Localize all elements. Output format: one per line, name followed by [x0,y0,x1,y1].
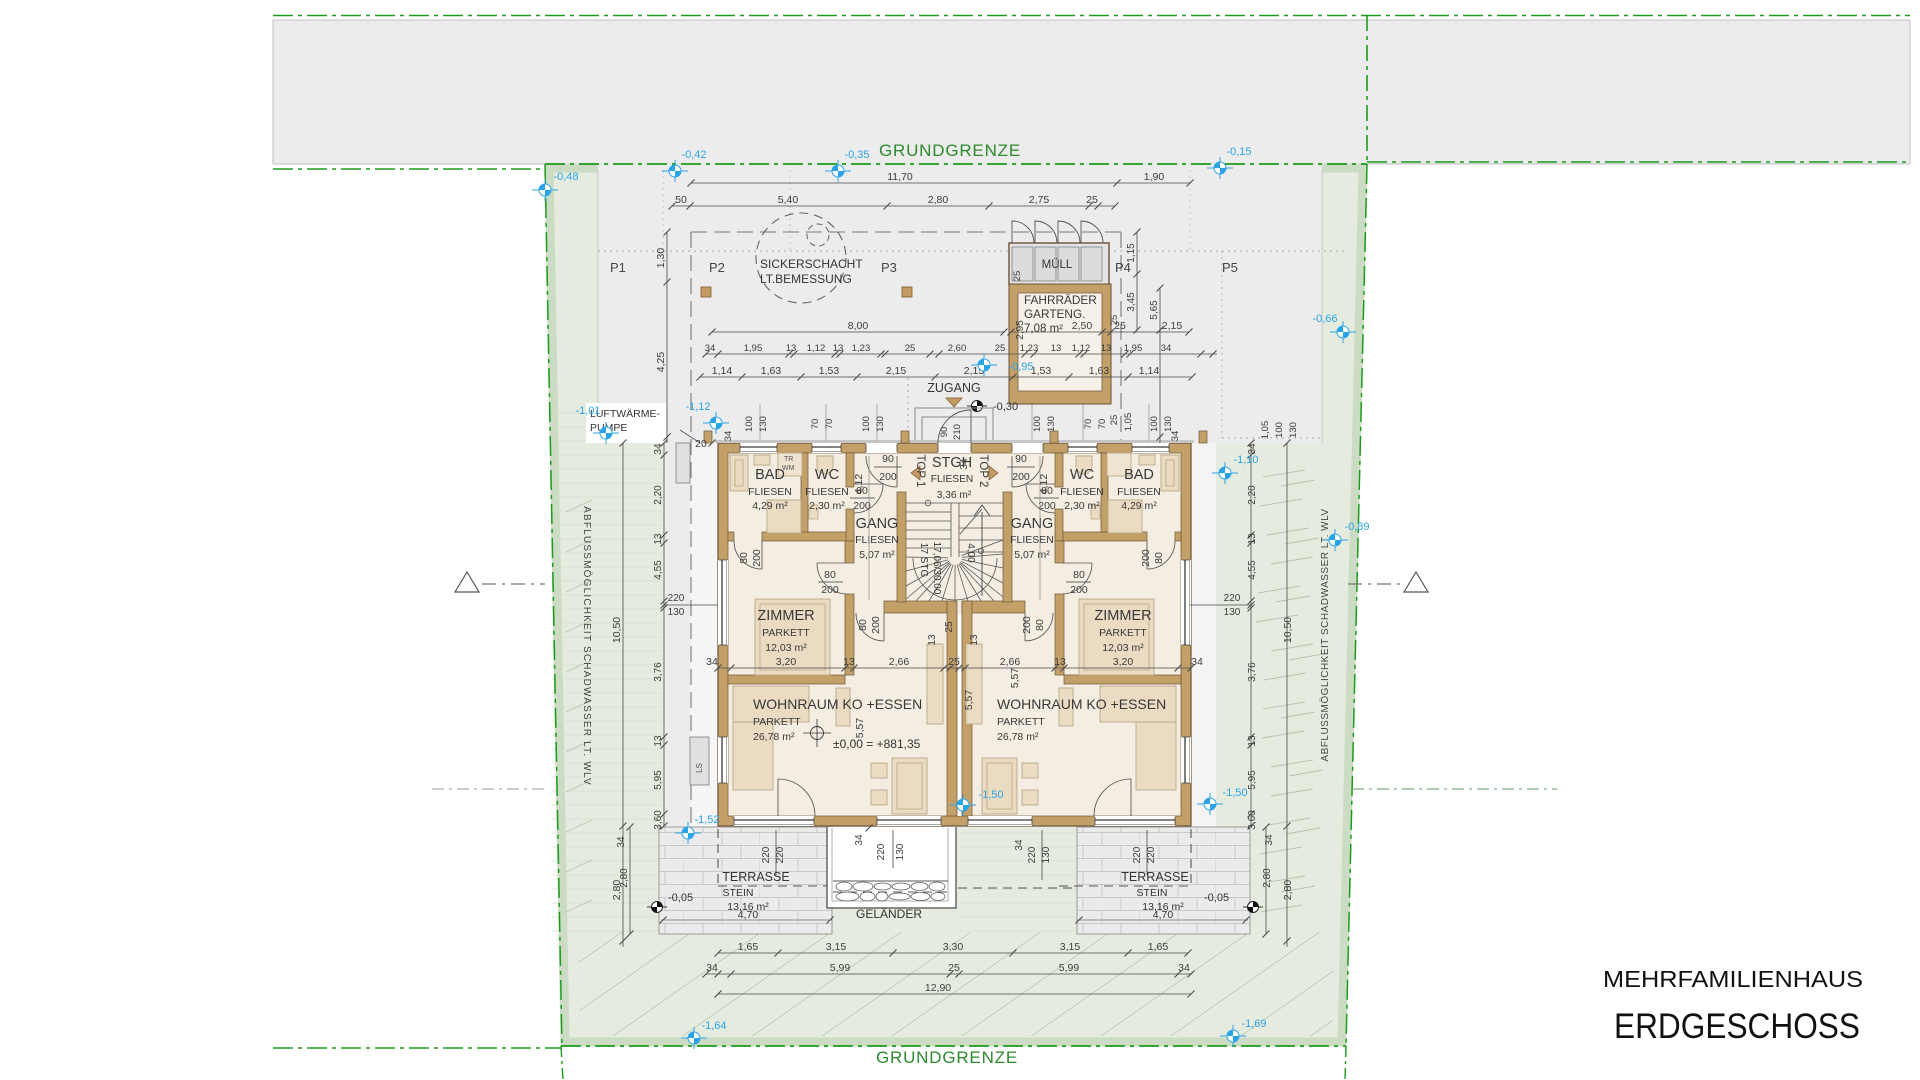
svg-text:130: 130 [1224,607,1241,618]
svg-text:200: 200 [751,549,763,567]
svg-text:100: 100 [1149,416,1160,432]
svg-text:80: 80 [824,569,836,581]
svg-text:1,65: 1,65 [1148,941,1169,953]
svg-text:80: 80 [1073,569,1085,581]
svg-text:130: 130 [895,843,906,860]
svg-text:2,66: 2,66 [889,656,910,668]
svg-text:2,80: 2,80 [619,868,630,888]
svg-text:13: 13 [1051,343,1062,354]
svg-text:25: 25 [995,343,1006,354]
svg-text:1,95: 1,95 [744,343,763,354]
svg-text:70: 70 [1097,419,1108,430]
svg-text:34: 34 [1014,839,1025,851]
svg-text:WOHNRAUM KO +ESSEN: WOHNRAUM KO +ESSEN [997,696,1166,712]
svg-text:100: 100 [744,416,755,432]
svg-text:13: 13 [1101,343,1112,354]
svg-text:3,60: 3,60 [653,810,664,830]
svg-text:8,00: 8,00 [848,320,869,332]
svg-text:2,75: 2,75 [1029,194,1050,206]
svg-text:80: 80 [1153,552,1165,564]
svg-text:4,70: 4,70 [738,909,759,921]
svg-text:2,30 m²: 2,30 m² [1064,500,1100,512]
svg-text:2,15: 2,15 [886,365,907,377]
svg-text:-0,05: -0,05 [668,892,693,904]
svg-text:-1,12: -1,12 [685,401,710,413]
svg-text:26,78 m²: 26,78 m² [997,731,1039,743]
svg-text:90: 90 [882,453,894,465]
svg-text:80: 80 [1034,619,1046,631]
svg-text:200: 200 [853,500,871,512]
svg-text:34: 34 [705,343,716,354]
svg-text:1,63: 1,63 [1089,365,1110,377]
svg-text:25: 25 [1109,415,1120,426]
svg-text:34: 34 [616,836,627,848]
svg-text:130: 130 [875,416,886,432]
svg-text:2,50: 2,50 [1072,320,1093,332]
svg-text:3,30: 3,30 [943,941,964,953]
svg-text:1,95: 1,95 [1124,343,1143,354]
svg-text:5,40: 5,40 [778,194,799,206]
svg-text:5,57: 5,57 [854,718,866,739]
svg-text:2,60: 2,60 [948,343,967,354]
svg-text:70: 70 [810,419,821,430]
svg-text:1,12: 1,12 [1072,343,1091,354]
svg-text:210: 210 [952,424,963,440]
svg-text:P5: P5 [1222,260,1238,275]
svg-text:-0,89: -0,89 [1344,521,1369,533]
svg-text:ABFLUSSMÖGLICHKEIT SCHADWASSER: ABFLUSSMÖGLICHKEIT SCHADWASSER LT. WLV [581,506,593,786]
svg-text:-0,48: -0,48 [553,171,578,183]
svg-text:-1,52: -1,52 [694,814,719,826]
svg-text:200: 200 [870,616,882,634]
svg-text:13: 13 [927,634,938,646]
svg-text:2,80: 2,80 [928,194,949,206]
svg-text:4,12: 4,12 [853,474,865,495]
svg-text:80: 80 [738,552,750,564]
svg-text:25: 25 [948,962,960,974]
svg-text:12,03 m²: 12,03 m² [1102,642,1144,654]
svg-text:1,14: 1,14 [712,365,733,377]
svg-text:34: 34 [1161,343,1172,354]
svg-text:1,53: 1,53 [819,365,840,377]
svg-text:25: 25 [948,656,960,668]
svg-text:25: 25 [1012,271,1023,282]
svg-text:90: 90 [939,427,950,438]
svg-text:70: 70 [1083,419,1094,430]
svg-text:WC: WC [1070,467,1094,483]
svg-text:220: 220 [1146,846,1157,863]
svg-text:12,03 m²: 12,03 m² [765,642,807,654]
svg-text:WOHNRAUM KO +ESSEN: WOHNRAUM KO +ESSEN [753,696,922,712]
svg-text:5,95: 5,95 [653,770,664,790]
svg-text:200: 200 [1021,616,1033,634]
svg-text:2,15: 2,15 [1162,320,1183,332]
svg-text:WC: WC [815,467,839,483]
svg-text:200: 200 [821,584,839,596]
svg-text:-0,42: -0,42 [681,149,706,161]
svg-text:MEHRFAMILIENHAUS: MEHRFAMILIENHAUS [1603,966,1863,992]
svg-text:4,70: 4,70 [1153,909,1174,921]
svg-text:-1,50: -1,50 [1222,787,1247,799]
svg-text:2,80: 2,80 [1262,868,1273,888]
svg-text:3,45: 3,45 [1126,292,1137,312]
svg-text:90: 90 [1015,453,1027,465]
svg-text:34: 34 [854,834,865,846]
svg-text:LUFTWÄRME-: LUFTWÄRME- [590,408,660,420]
svg-text:BAD: BAD [1124,467,1154,483]
svg-text:34: 34 [706,962,718,974]
svg-text:100: 100 [1032,416,1043,432]
svg-text:10,50: 10,50 [611,617,623,643]
svg-text:100: 100 [861,416,872,432]
svg-text:2,30 m²: 2,30 m² [809,500,845,512]
svg-text:SICKERSCHACHT: SICKERSCHACHT [760,257,863,271]
svg-text:-0,15: -0,15 [1226,146,1251,158]
svg-text:GANG: GANG [1011,516,1054,532]
svg-text:3,15: 3,15 [826,941,847,953]
svg-text:LT.BEMESSUNG: LT.BEMESSUNG [760,272,852,286]
svg-text:34: 34 [959,458,970,470]
svg-text:ZIMMER: ZIMMER [757,608,814,624]
svg-text:220: 220 [775,846,786,863]
svg-text:P2: P2 [709,260,725,275]
svg-text:34: 34 [1178,962,1190,974]
svg-text:4,29 m²: 4,29 m² [752,500,788,512]
svg-text:1,05: 1,05 [1123,413,1134,432]
svg-text:1,63: 1,63 [761,365,782,377]
svg-text:1,23: 1,23 [1020,343,1039,354]
svg-text:2,20: 2,20 [1247,485,1258,505]
svg-text:1,65: 1,65 [738,941,759,953]
svg-text:5,99: 5,99 [1059,962,1080,974]
svg-text:-1,10: -1,10 [1233,454,1258,466]
svg-text:1,23: 1,23 [852,343,871,354]
svg-text:34: 34 [723,431,734,442]
svg-text:P1: P1 [610,260,626,275]
svg-text:3,76: 3,76 [653,662,664,682]
svg-text:TOP 1: TOP 1 [914,455,926,488]
svg-text:13: 13 [1247,533,1258,545]
svg-text:130: 130 [1163,416,1174,432]
svg-text:5,65: 5,65 [1149,300,1160,320]
svg-text:220: 220 [876,843,887,860]
svg-text:FAHRRÄDER: FAHRRÄDER [1024,293,1097,307]
svg-text:-0,95: -0,95 [1008,361,1033,373]
svg-text:50: 50 [675,194,687,206]
svg-text:13: 13 [786,343,797,354]
svg-text:3,76: 3,76 [1247,662,1258,682]
svg-text:11,70: 11,70 [887,171,913,183]
svg-text:ERDGESCHOSS: ERDGESCHOSS [1614,1007,1860,1046]
svg-text:BAD: BAD [755,467,785,483]
svg-text:4,25: 4,25 [655,352,667,373]
svg-text:13: 13 [653,735,664,747]
svg-text:17 STG: 17 STG [918,543,929,578]
svg-text:34: 34 [653,443,664,455]
svg-text:200: 200 [1038,500,1056,512]
svg-text:-0,30: -0,30 [993,401,1018,413]
svg-text:5,07 m²: 5,07 m² [1014,549,1050,561]
svg-text:5,57: 5,57 [1009,668,1021,689]
svg-text:3,20: 3,20 [776,656,797,668]
svg-text:13: 13 [1247,735,1258,747]
svg-text:34: 34 [1264,834,1275,846]
svg-text:70: 70 [824,419,835,430]
svg-text:ZIMMER: ZIMMER [1094,608,1151,624]
svg-text:5,99: 5,99 [830,962,851,974]
svg-text:-0,05: -0,05 [1204,892,1229,904]
svg-text:1,12: 1,12 [807,343,826,354]
svg-text:3,20: 3,20 [1113,656,1134,668]
svg-text:PARKETT: PARKETT [753,716,801,728]
svg-text:3,60: 3,60 [1247,810,1258,830]
svg-text:FLIESEN: FLIESEN [805,486,849,498]
svg-text:12,90: 12,90 [925,982,951,994]
svg-text:4,29 m²: 4,29 m² [1121,500,1157,512]
svg-text:4,55: 4,55 [653,560,664,580]
svg-text:GARTENG.: GARTENG. [1024,307,1085,321]
svg-text:TOP 2: TOP 2 [977,455,989,488]
svg-text:25: 25 [1109,315,1120,326]
svg-text:1,90: 1,90 [1144,171,1165,183]
svg-text:PARKETT: PARKETT [997,716,1045,728]
svg-text:4,55: 4,55 [1247,560,1258,580]
svg-text:26,78 m²: 26,78 m² [753,731,795,743]
svg-text:5,07 m²: 5,07 m² [859,549,895,561]
svg-text:13: 13 [969,634,980,646]
svg-text:3,15: 3,15 [1060,941,1081,953]
svg-text:20: 20 [695,438,707,450]
svg-text:LS: LS [695,763,704,773]
svg-text:25: 25 [1086,194,1098,206]
svg-text:FLIESEN: FLIESEN [1010,534,1054,546]
svg-text:4,12: 4,12 [1038,474,1050,495]
svg-text:13: 13 [653,533,664,545]
svg-text:7,08 m²: 7,08 m² [1024,323,1063,335]
svg-text:34: 34 [1247,443,1258,455]
svg-text:200: 200 [1012,471,1030,483]
svg-text:FLIESEN: FLIESEN [931,474,973,485]
svg-text:130: 130 [1041,846,1052,863]
svg-text:FLIESEN: FLIESEN [1060,486,1104,498]
svg-text:STEIN: STEIN [1137,887,1168,899]
svg-text:2,20: 2,20 [653,485,664,505]
svg-text:MÜLL: MÜLL [1042,259,1073,271]
svg-text:220: 220 [761,846,772,863]
svg-text:220: 220 [668,593,685,604]
svg-text:200: 200 [1070,584,1088,596]
svg-text:3,36 m²: 3,36 m² [937,490,972,501]
svg-text:2,66: 2,66 [1000,656,1021,668]
svg-text:1,14: 1,14 [1139,365,1160,377]
svg-text:220: 220 [1132,846,1143,863]
svg-text:-1,01: -1,01 [575,405,600,417]
svg-text:130: 130 [758,416,769,432]
svg-text:200: 200 [879,471,897,483]
svg-text:130: 130 [1288,422,1299,438]
svg-text:GELÄNDER: GELÄNDER [856,907,922,921]
svg-text:13: 13 [833,343,844,354]
svg-text:-1,50: -1,50 [978,789,1003,801]
svg-text:ZUGANG: ZUGANG [927,381,980,395]
svg-text:-0,35: -0,35 [844,149,869,161]
svg-text:100: 100 [1274,422,1285,438]
svg-text:130: 130 [1046,416,1057,432]
svg-text:FLIESEN: FLIESEN [855,534,899,546]
svg-text:80: 80 [857,619,869,631]
svg-text:13: 13 [1054,656,1066,668]
svg-text:4,00: 4,00 [965,543,976,563]
svg-text:FLIESEN: FLIESEN [1117,486,1161,498]
svg-text:2,80: 2,80 [1282,880,1294,901]
svg-text:5,57: 5,57 [963,690,975,711]
svg-text:1,15: 1,15 [1126,243,1137,263]
svg-text:TERRASSE: TERRASSE [1121,870,1188,884]
svg-text:TERRASSE: TERRASSE [722,870,789,884]
svg-text:130: 130 [668,607,685,618]
svg-text:220: 220 [1027,846,1038,863]
svg-text:GRUNDGRENZE: GRUNDGRENZE [876,1048,1018,1067]
svg-text:-1,64: -1,64 [701,1020,726,1032]
svg-text:220: 220 [1224,593,1241,604]
svg-text:25: 25 [905,343,916,354]
svg-text:FLIESEN: FLIESEN [748,486,792,498]
svg-text:1,30: 1,30 [655,248,667,269]
svg-text:13: 13 [843,656,855,668]
svg-text:5,95: 5,95 [1247,770,1258,790]
svg-text:P3: P3 [881,260,897,275]
svg-text:17,06/30,00: 17,06/30,00 [931,542,942,595]
svg-text:-0,66: -0,66 [1312,313,1337,325]
svg-text:±0,00 = +881,35: ±0,00 = +881,35 [833,737,921,751]
svg-text:1,05: 1,05 [1260,421,1271,440]
svg-text:34: 34 [1170,431,1181,442]
svg-text:25: 25 [944,621,955,633]
svg-text:GRUNDGRENZE: GRUNDGRENZE [879,141,1021,160]
svg-text:TR: TR [784,456,793,463]
svg-text:PARKETT: PARKETT [1099,627,1147,639]
svg-text:200: 200 [1140,549,1152,567]
svg-text:-1,69: -1,69 [1241,1018,1266,1030]
svg-text:1,53: 1,53 [1031,365,1052,377]
svg-text:GANG: GANG [856,516,899,532]
svg-text:34: 34 [706,656,718,668]
svg-text:2,95: 2,95 [1015,320,1026,340]
svg-text:PARKETT: PARKETT [762,627,810,639]
svg-text:ABFLUSSMÖGLICHKEIT SCHADWASSER: ABFLUSSMÖGLICHKEIT SCHADWASSER LT. WLV [1319,508,1331,761]
svg-text:STEIN: STEIN [723,887,754,899]
svg-text:34: 34 [1191,656,1203,668]
svg-text:10,50: 10,50 [1282,617,1294,643]
